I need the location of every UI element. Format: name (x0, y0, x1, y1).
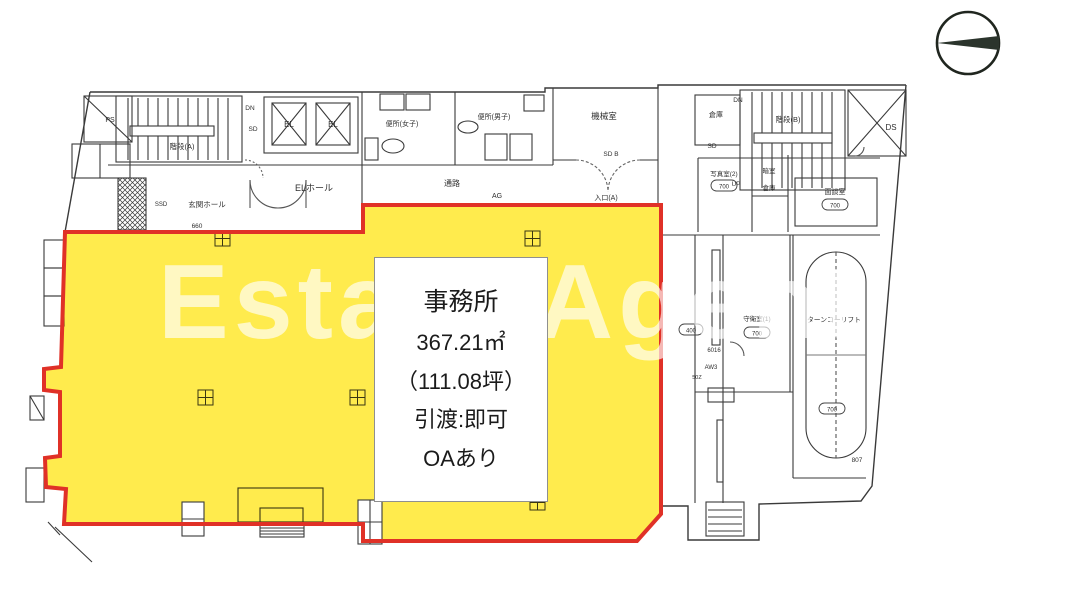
dark-room-label: 暗室 (763, 166, 777, 175)
compass (932, 6, 1004, 83)
guard-room-label: 守衛室(1) (743, 314, 770, 323)
corridor-label: 通路 (444, 178, 460, 188)
ag-label: AG (492, 193, 502, 200)
c6016-code: 6016 (707, 348, 721, 354)
badge-700-c: 700 (752, 332, 763, 338)
north-arrow-icon (937, 36, 999, 50)
entrance-hall-label: 玄関ホール (188, 199, 226, 209)
badge-700-a: 700 (719, 185, 730, 191)
c807-code: 807 (852, 457, 863, 464)
toilet-women-label: 便所(女子) (386, 119, 419, 128)
sd-a-code: SD (248, 126, 257, 133)
machine-room-label: 機械室 (591, 111, 617, 121)
aw3-code: AW3 (705, 365, 718, 371)
floor-plan-page: 階段(A) EL EL PS ELホール 玄関ホール 便所(女子) 便所(男子)… (0, 0, 1065, 610)
number-badges: 700 700 700 700 400 (679, 180, 848, 414)
sd-door-code: SD B (603, 151, 618, 158)
ds-label: DS (885, 123, 896, 132)
badge-700-d: 700 (827, 408, 838, 414)
storage2-label: 倉庫 (763, 183, 777, 192)
stair-a-label: 階段(A) (170, 141, 195, 151)
unit-area-tsubo: （111.08坪） (396, 363, 526, 402)
stair-b-label: 階段(B) (776, 114, 801, 124)
badge-400: 400 (686, 329, 697, 335)
c50z-code: 50Z (692, 375, 702, 381)
elevator-1-label: EL (284, 120, 294, 129)
toilet-men-label: 便所(男子) (478, 112, 511, 121)
unit-handover: 引渡:即可 (414, 401, 508, 440)
unit-info-box: 事務所 367.21㎡ （111.08坪） 引渡:即可 OAあり (374, 257, 548, 502)
dn-b-code: DN (733, 97, 743, 104)
highlight-area (44, 205, 661, 541)
sd-b-code: SD (707, 143, 716, 150)
dn-a-code: DN (245, 105, 255, 112)
photo-room-label: 写真室(2) (710, 169, 737, 178)
badge-700-b: 700 (830, 204, 841, 210)
entrance-label: 入口(A) (594, 194, 617, 202)
storage-label: 倉庫 (709, 110, 723, 119)
ssd-code: SSD (155, 202, 168, 208)
unit-area-sqm: 367.21㎡ (416, 324, 505, 363)
c660-code: 660 (192, 223, 203, 230)
ps-label: PS (105, 117, 115, 124)
meeting-room-label: 面談室 (825, 187, 846, 196)
elevator-2-label: EL (328, 120, 338, 129)
unit-oa-floor: OAあり (423, 440, 499, 479)
unit-type: 事務所 (423, 281, 498, 325)
el-hall-label: ELホール (295, 183, 333, 193)
turn-lift-label: ターンコーリフト (807, 315, 861, 324)
